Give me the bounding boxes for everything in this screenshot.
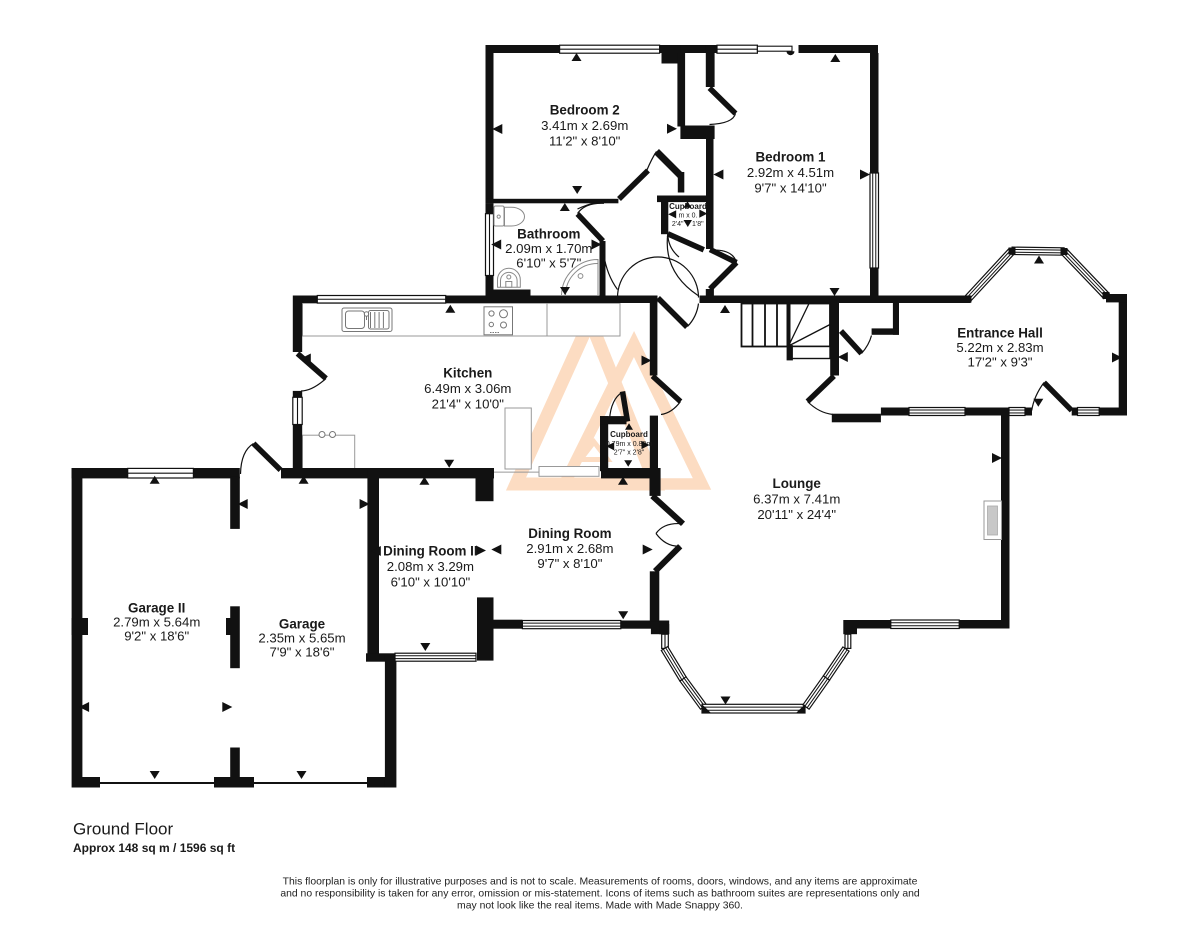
svg-text:Dining Room: Dining Room: [528, 526, 611, 541]
svg-text:3.41m x 2.69m: 3.41m x 2.69m: [541, 118, 628, 133]
svg-text:21'4" x 10'0": 21'4" x 10'0": [432, 397, 505, 412]
svg-text:This floorplan is only for ill: This floorplan is only for illustrative …: [283, 877, 918, 888]
svg-text:Kitchen: Kitchen: [443, 366, 492, 381]
svg-text:6'10" x 10'10": 6'10" x 10'10": [391, 575, 471, 590]
svg-text:may not look like the real ite: may not look like the real items. Made w…: [457, 901, 743, 912]
svg-text:Lounge: Lounge: [773, 476, 821, 491]
svg-text:Bathroom: Bathroom: [517, 227, 580, 242]
svg-text:and no responsibility is taken: and no responsibility is taken for any e…: [280, 889, 920, 900]
svg-text:2.91m x 2.68m: 2.91m x 2.68m: [526, 541, 613, 556]
svg-text:2.09m x 1.70m: 2.09m x 1.70m: [505, 241, 592, 256]
svg-text:m x 0.: m x 0.: [679, 213, 698, 220]
svg-text:Garage: Garage: [279, 617, 325, 632]
svg-text:9'7" x 14'10": 9'7" x 14'10": [754, 181, 827, 196]
svg-text:2.35m x 5.65m: 2.35m x 5.65m: [258, 631, 345, 646]
svg-text:17'2" x 9'3": 17'2" x 9'3": [968, 355, 1033, 370]
svg-text:2'7" x 2'8": 2'7" x 2'8": [614, 449, 645, 456]
svg-text:Bedroom 1: Bedroom 1: [756, 150, 826, 165]
svg-text:Approx 148 sq m / 1596 sq ft: Approx 148 sq m / 1596 sq ft: [73, 841, 235, 855]
svg-text:Bedroom 2: Bedroom 2: [550, 103, 620, 118]
svg-text:Entrance Hall: Entrance Hall: [957, 326, 1043, 341]
svg-text:9'2" x 18'6": 9'2" x 18'6": [124, 629, 189, 644]
svg-text:Cupboard: Cupboard: [610, 430, 648, 439]
svg-text:5.22m x 2.83m: 5.22m x 2.83m: [956, 340, 1043, 355]
svg-text:7'9" x 18'6": 7'9" x 18'6": [270, 645, 335, 660]
svg-text:11'2" x 8'10": 11'2" x 8'10": [549, 134, 621, 149]
svg-text:2.08m x 3.29m: 2.08m x 3.29m: [387, 559, 474, 574]
svg-text:6'10" x 5'7": 6'10" x 5'7": [516, 256, 581, 271]
svg-text:2.79m x 5.64m: 2.79m x 5.64m: [113, 615, 200, 630]
svg-text:6.37m x 7.41m: 6.37m x 7.41m: [753, 492, 840, 507]
svg-text:Garage II: Garage II: [128, 601, 185, 616]
svg-text:6.49m x 3.06m: 6.49m x 3.06m: [424, 381, 511, 396]
svg-text:1'8": 1'8": [692, 221, 704, 228]
svg-text:20'11" x 24'4": 20'11" x 24'4": [757, 507, 836, 522]
svg-text:2.92m x 4.51m: 2.92m x 4.51m: [747, 165, 834, 180]
svg-text:Ground Floor: Ground Floor: [73, 820, 173, 839]
svg-text:2'4": 2'4": [672, 221, 684, 228]
svg-text:Dining Room II: Dining Room II: [383, 544, 477, 559]
svg-text:9'7" x 8'10": 9'7" x 8'10": [537, 556, 602, 571]
